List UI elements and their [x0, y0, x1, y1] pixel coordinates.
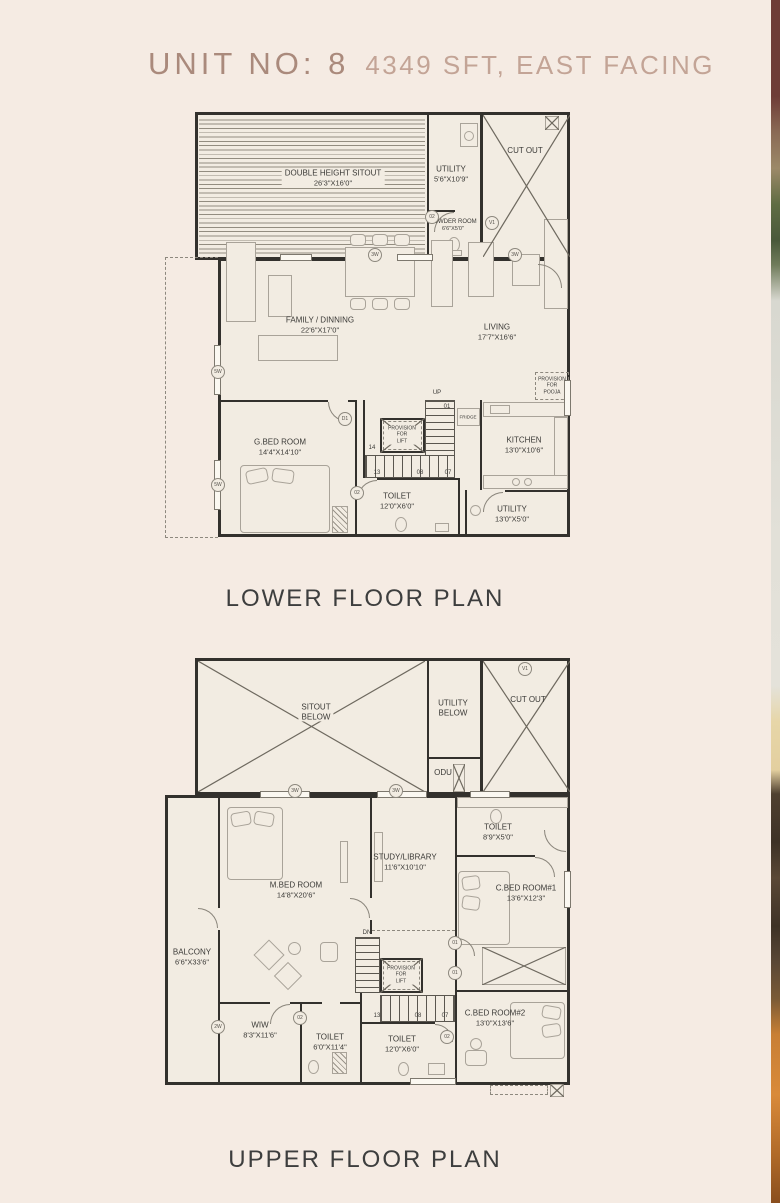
vent-tag: V1	[485, 216, 499, 230]
room-name: BALCONY	[173, 948, 211, 958]
window	[280, 254, 312, 261]
room-dim: 17'7"X16'6"	[478, 332, 516, 341]
window	[470, 791, 510, 798]
room-name: M.BED ROOM	[270, 881, 322, 891]
upper-floor-caption: UPPER FLOOR PLAN	[150, 1146, 580, 1174]
page-title: UNIT NO: 8 4349 SFT, EAST FACING	[148, 46, 715, 82]
window	[410, 1078, 456, 1085]
kitchen-counter	[554, 417, 568, 477]
wall	[362, 1022, 435, 1024]
room-name: DOUBLE HEIGHT SITOUT	[285, 169, 382, 179]
wall	[218, 400, 328, 402]
wall	[340, 1002, 360, 1004]
room-label-utility-below: UTILITY BELOW	[438, 698, 468, 717]
room-label-sitout-below: SITOUT BELOW	[298, 702, 333, 721]
room-label-family: FAMILY / DINNING 22'6"X17'0"	[286, 316, 354, 335]
odu-cross	[453, 764, 465, 792]
dining-chair	[350, 298, 366, 310]
window	[564, 871, 571, 908]
stove-burner	[524, 478, 532, 486]
window-tag: 3W	[368, 248, 382, 262]
room-name: KITCHEN	[505, 436, 543, 446]
stairs-dn-label: DN	[363, 930, 372, 936]
wardrobe	[332, 506, 348, 533]
stair-number: 07	[442, 1013, 449, 1019]
room-label-toilet3: TOILET 12'0"X6'0"	[385, 1035, 419, 1054]
wash-basin	[428, 1063, 445, 1075]
room-dim: 5'6"X10'9"	[434, 174, 468, 183]
wall	[370, 795, 372, 898]
stove-burner	[512, 478, 520, 486]
lift-line: LIFT	[387, 978, 415, 984]
room-name: STUDY/LIBRARY	[373, 853, 436, 863]
room-dim: 13'6"X12'3"	[496, 893, 556, 902]
wash-basin	[435, 523, 449, 532]
upper-floor-plan: SITOUT BELOW UTILITY BELOW ODU CUT OUT V…	[150, 652, 572, 1088]
wall	[218, 795, 220, 908]
wall	[455, 990, 570, 992]
toilet-wc	[398, 1062, 409, 1076]
window-tag: 3W	[508, 248, 522, 262]
room-dim: 13'0"X13'6"	[465, 1018, 525, 1027]
room-dim: 26'3"X16'0"	[285, 178, 382, 187]
cutout-cross	[483, 115, 570, 257]
room-dim: 12'0"X6'0"	[380, 501, 414, 510]
room-label-living: LIVING 17'7"X16'6"	[478, 323, 516, 342]
room-label-toilet: TOILET 12'0"X6'0"	[380, 492, 414, 511]
room-dim: 8'3"X11'6"	[243, 1030, 277, 1039]
dining-chair	[372, 298, 388, 310]
pillow	[461, 875, 481, 891]
room-label-odu: ODU	[434, 768, 452, 778]
room-dim: 6'6"X5'0"	[429, 226, 476, 233]
room-dim: 22'6"X17'0"	[286, 325, 354, 334]
stair-number: 01	[444, 404, 451, 410]
fridge-label: FRIDGE	[459, 414, 476, 419]
setback-dashed-line	[165, 257, 218, 538]
room-name: SITOUT	[301, 702, 330, 712]
room-label-utility2: UTILITY 13'0"X5'0"	[495, 505, 529, 524]
toilet-wc	[395, 517, 407, 532]
coffee-table	[268, 275, 292, 317]
room-name: WIW	[243, 1021, 277, 1031]
room-name: TOILET	[380, 492, 414, 502]
skylight-cross	[545, 116, 559, 130]
room-name: CUT OUT	[507, 146, 542, 156]
window	[260, 791, 310, 798]
room-label-cutout: CUT OUT	[507, 146, 542, 156]
room-name: BELOW	[438, 708, 468, 718]
wall	[455, 992, 457, 1085]
wall	[480, 400, 482, 490]
wall	[218, 930, 220, 1085]
room-dim: 14'8"X20'6"	[270, 890, 322, 899]
room-dim: 14'4"X14'10"	[254, 447, 306, 456]
pillow	[461, 895, 481, 911]
window	[397, 254, 433, 261]
room-name: G.BED ROOM	[254, 438, 306, 448]
chair	[470, 1038, 482, 1050]
room-dim: 13'0"X5'0"	[495, 514, 529, 523]
wall	[302, 1002, 322, 1004]
room-label-lift-upper: PROVISION FOR LIFT	[384, 966, 418, 985]
stairs-upper-run	[355, 937, 380, 993]
room-name: BELOW	[301, 712, 330, 722]
wall	[429, 757, 480, 759]
toilet-counter	[457, 797, 568, 808]
window-tag: 5W	[211, 365, 225, 379]
window-tag: 5W	[211, 478, 225, 492]
room-name: C.BED ROOM#2	[465, 1009, 525, 1019]
door-tag: D1	[338, 412, 352, 426]
wall	[427, 115, 429, 257]
wall	[427, 661, 429, 792]
pooja-line: POOJA	[538, 389, 566, 395]
door-tag: 02	[350, 486, 364, 500]
room-label-balcony: BALCONY 6'6"X33'6"	[173, 948, 211, 967]
room-name: FAMILY / DINNING	[286, 316, 354, 326]
unit-details: 4349 SFT, EAST FACING	[365, 50, 715, 81]
dining-chair	[394, 234, 410, 246]
adjacent-photo-edge	[771, 0, 780, 1203]
toilet-wc	[308, 1060, 319, 1074]
room-label-cutout-upper: CUT OUT	[510, 695, 545, 705]
door-tag: 01	[448, 966, 462, 980]
dining-chair	[394, 298, 410, 310]
room-label-mbed: M.BED ROOM 14'8"X20'6"	[270, 881, 322, 900]
brochure-page: UNIT NO: 8 4349 SFT, EAST FACING DOUBLE …	[0, 0, 780, 1203]
room-label-toilet2: TOILET 6'0"X11'4"	[313, 1033, 347, 1052]
room-name: UTILITY	[495, 505, 529, 515]
room-dim: 6'0"X11'4"	[313, 1042, 347, 1051]
room-dim: 11'6"X10'10"	[373, 862, 436, 871]
sofa	[431, 240, 453, 307]
window-tag: 3W	[389, 784, 403, 798]
pillow	[541, 1023, 562, 1039]
wardrobe-cross	[482, 947, 566, 985]
room-label-toilet1: TOILET 8'9"X5'0"	[483, 823, 513, 842]
room-name: C.BED ROOM#1	[496, 884, 556, 894]
room-dim: 6'6"X33'6"	[173, 957, 211, 966]
room-label-wiw: WIW 8'3"X11'6"	[243, 1021, 277, 1040]
room-label-sitout: DOUBLE HEIGHT SITOUT 26'3"X16'0"	[282, 169, 385, 188]
room-label-kitchen: KITCHEN 13'0"X10'6"	[505, 436, 543, 455]
window-tag: 3W	[288, 784, 302, 798]
room-label-cbed1: C.BED ROOM#1 13'6"X12'3"	[496, 884, 556, 903]
door-tag: 02	[425, 210, 439, 224]
stair-number: 08	[415, 1013, 422, 1019]
dresser	[340, 841, 348, 883]
room-label-gbed: G.BED ROOM 14'4"X14'10"	[254, 438, 306, 457]
cutout-cross	[483, 661, 570, 792]
utility-sink	[470, 505, 481, 516]
corner-box-cross	[550, 1084, 564, 1097]
stair-number: 14	[369, 445, 376, 451]
room-name: TOILET	[385, 1035, 419, 1045]
wall	[220, 1002, 270, 1004]
room-dim: 8'9"X5'0"	[483, 832, 513, 841]
armchair	[320, 942, 338, 962]
kitchen-sink	[490, 405, 510, 414]
wall	[505, 490, 570, 492]
room-name: UTILITY	[438, 698, 468, 708]
lower-floor-plan: DOUBLE HEIGHT SITOUT 26'3"X16'0" UTILITY…	[150, 107, 572, 543]
stair-number: 08	[417, 470, 424, 476]
shower-area	[332, 1052, 347, 1074]
room-label-lift: PROVISION FOR LIFT	[385, 426, 419, 445]
door-tag: 02	[440, 1030, 454, 1044]
room-name: TOILET	[313, 1033, 347, 1043]
sofa	[226, 242, 256, 322]
bottom-ledge-dashed	[490, 1085, 548, 1095]
room-name: UTILITY	[434, 165, 468, 175]
room-dim: 12'0"X6'0"	[385, 1044, 419, 1053]
wall	[360, 993, 362, 1085]
unit-number: UNIT NO: 8	[148, 46, 349, 82]
stairs-up-label: UP	[433, 390, 441, 396]
sofa	[258, 335, 338, 361]
room-name: TOILET	[483, 823, 513, 833]
room-label-cbed2: C.BED ROOM#2 13'0"X13'6"	[465, 1009, 525, 1028]
stair-number: 07	[445, 470, 452, 476]
room-name: LIVING	[478, 323, 516, 333]
room-label-study: STUDY/LIBRARY 11'6"X10'10"	[373, 853, 436, 872]
dining-chair	[350, 234, 366, 246]
desk	[465, 1050, 487, 1066]
stair-number: 13	[374, 470, 381, 476]
room-label-utility: UTILITY 5'6"X10'9"	[434, 165, 468, 184]
stair-number: 13	[374, 1013, 381, 1019]
door-tag: 01	[448, 936, 462, 950]
lift-line: LIFT	[388, 438, 416, 444]
window-tag: 2W	[211, 1020, 225, 1034]
wall	[455, 855, 535, 857]
round-table	[288, 942, 301, 955]
washing-machine-drum	[464, 131, 474, 141]
wall	[458, 478, 460, 537]
pillow	[271, 468, 295, 485]
door-tag: 02	[293, 1011, 307, 1025]
room-label-pooja: PROVISION FOR POOJA	[538, 377, 566, 396]
lower-floor-caption: LOWER FLOOR PLAN	[150, 585, 580, 613]
vent-tag: V1	[518, 662, 532, 676]
room-dim: 13'0"X10'6"	[505, 445, 543, 454]
wall	[377, 478, 460, 480]
study-open-dashed	[372, 930, 455, 931]
wall	[465, 490, 467, 537]
dining-chair	[372, 234, 388, 246]
sitout-below-cross	[198, 661, 425, 792]
